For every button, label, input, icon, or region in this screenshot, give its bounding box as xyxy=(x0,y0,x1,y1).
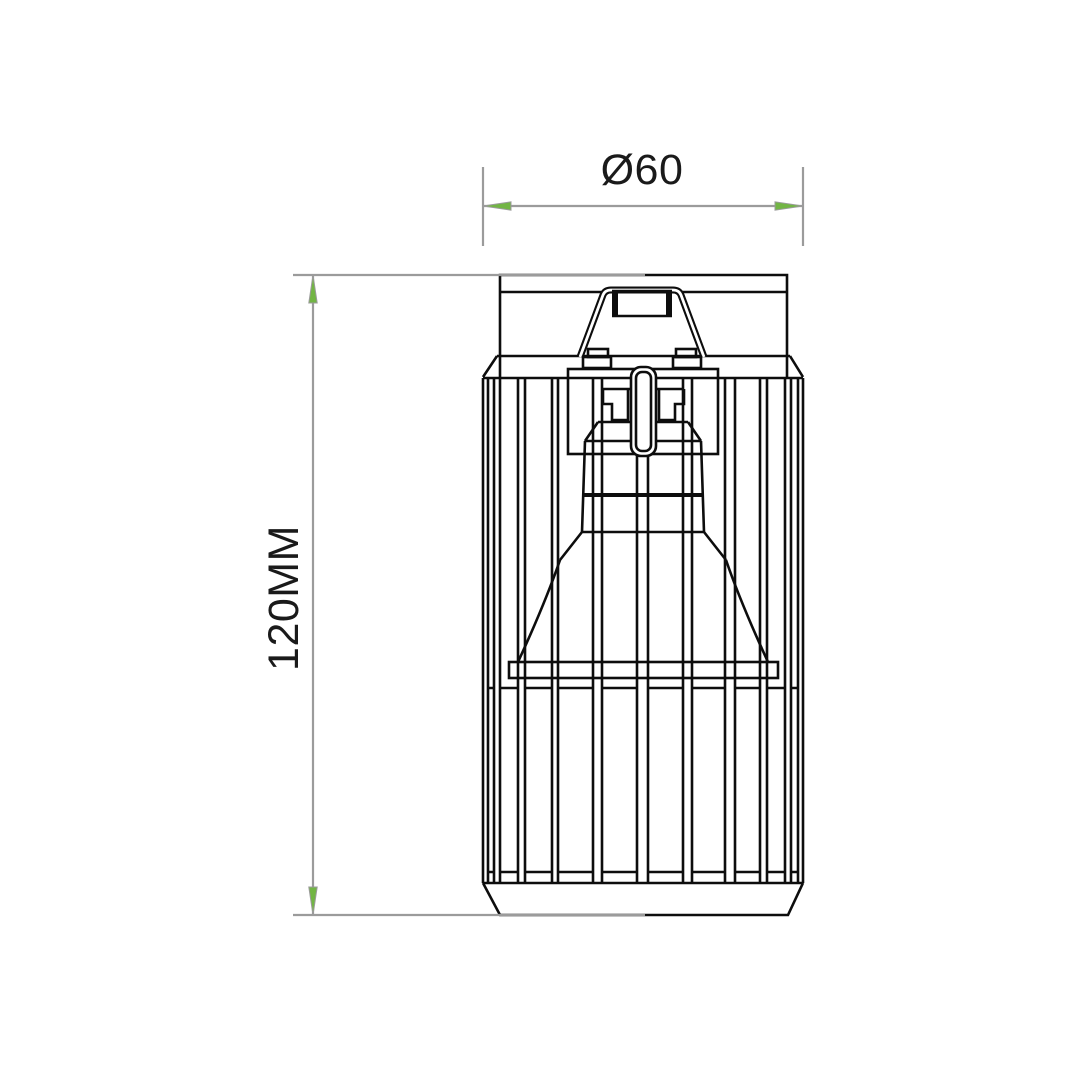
drawing-canvas: Ø60 120MM xyxy=(0,0,1080,1080)
arrow-right-icon xyxy=(775,202,803,210)
arrow-down-icon xyxy=(309,887,317,915)
bracket-notch-lines xyxy=(612,291,672,316)
bracket-notch-side-left xyxy=(612,290,618,316)
bracket-foot-left xyxy=(583,357,611,368)
cage-cross-bar xyxy=(509,662,778,678)
bracket-notch-side-right xyxy=(666,290,672,316)
bulb-bell xyxy=(518,532,768,662)
arrow-up-icon xyxy=(309,275,317,303)
socket-contact-right xyxy=(659,389,684,420)
socket-contact-left xyxy=(603,389,628,420)
technical-drawing xyxy=(0,0,1080,1080)
dimension-height-label: 120MM xyxy=(260,498,308,698)
tapered-base xyxy=(483,883,803,915)
arrow-left-icon xyxy=(483,202,511,210)
bracket-foot-right xyxy=(673,357,701,368)
dimension-width-label: Ø60 xyxy=(542,146,742,194)
fixture-linework xyxy=(483,275,803,915)
mounting-bracket xyxy=(580,290,704,357)
